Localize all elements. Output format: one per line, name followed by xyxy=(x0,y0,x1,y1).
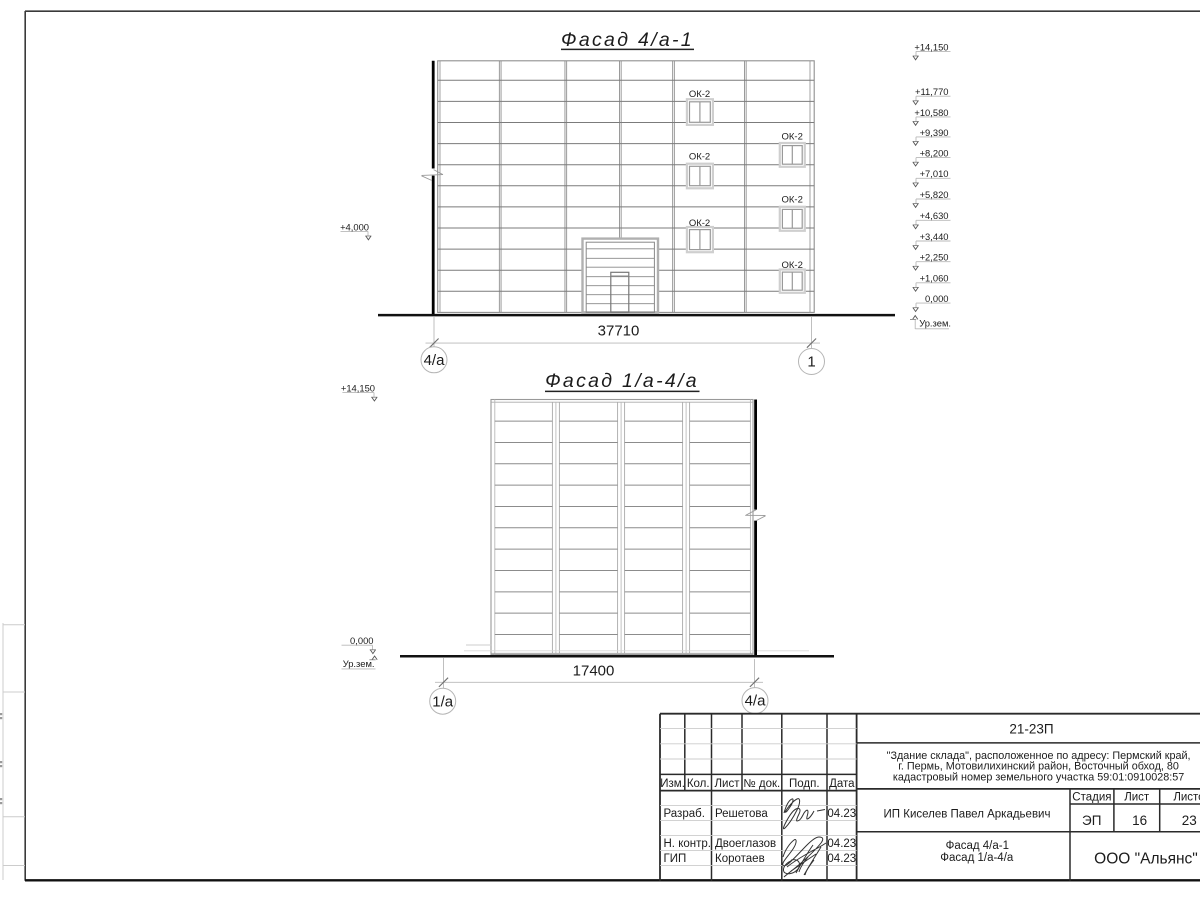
svg-text:04.23: 04.23 xyxy=(827,853,856,865)
svg-text:Фасад 4/а-1: Фасад 4/а-1 xyxy=(946,840,1009,852)
svg-text:Фасад 1/а-4/а: Фасад 1/а-4/а xyxy=(545,370,699,392)
svg-text:ООО "Альянс": ООО "Альянс" xyxy=(1094,851,1198,868)
svg-text:Подп.: Подп. xyxy=(789,778,820,790)
svg-text:ОК-2: ОК-2 xyxy=(782,195,803,206)
svg-text:Дата: Дата xyxy=(829,778,855,790)
svg-text:Коротаев: Коротаев xyxy=(715,853,765,865)
svg-text:+14,150: +14,150 xyxy=(341,383,375,394)
svg-text:Фасад 1/а-4/а: Фасад 1/а-4/а xyxy=(940,852,1014,864)
svg-text:Кол.: Кол. xyxy=(687,778,710,790)
svg-text:Н. контр.: Н. контр. xyxy=(664,838,711,850)
svg-text:Изм.: Изм. xyxy=(660,778,685,790)
svg-text:№ док.: № док. xyxy=(743,778,780,790)
svg-text:ГИП: ГИП xyxy=(664,853,687,865)
svg-text:16: 16 xyxy=(1132,813,1147,828)
svg-text:37710: 37710 xyxy=(598,322,640,339)
svg-text:Лист: Лист xyxy=(1124,792,1150,804)
svg-text:17400: 17400 xyxy=(573,662,615,679)
svg-text:кадастровый номер земельного у: кадастровый номер земельного участка 59:… xyxy=(893,771,1184,783)
svg-text:ОК-2: ОК-2 xyxy=(689,152,710,163)
svg-text:+9,390: +9,390 xyxy=(920,127,949,138)
svg-text:Ур.зем.: Ур.зем. xyxy=(919,318,951,329)
svg-text:Фасад 4/а-1: Фасад 4/а-1 xyxy=(561,29,694,51)
svg-text:04.23: 04.23 xyxy=(827,808,856,820)
svg-text:1: 1 xyxy=(807,354,815,371)
svg-text:ОК-2: ОК-2 xyxy=(782,260,803,271)
svg-text:4/а: 4/а xyxy=(745,693,767,710)
svg-text:Стадия: Стадия xyxy=(1072,792,1111,804)
svg-text:Лист: Лист xyxy=(715,778,741,790)
svg-text:+4,000: +4,000 xyxy=(340,221,369,232)
svg-text:+10,580: +10,580 xyxy=(914,107,948,118)
svg-text:+4,630: +4,630 xyxy=(920,210,949,221)
svg-text:Листов: Листов xyxy=(1173,792,1200,804)
svg-text:+11,770: +11,770 xyxy=(915,86,948,97)
svg-text:+14,150: +14,150 xyxy=(914,41,948,52)
svg-text:+7,010: +7,010 xyxy=(920,168,949,179)
svg-text:+2,250: +2,250 xyxy=(920,252,949,263)
svg-text:Решетова: Решетова xyxy=(715,808,768,820)
svg-text:+8,200: +8,200 xyxy=(920,148,949,159)
svg-text:4/а: 4/а xyxy=(424,352,446,369)
svg-text:0,000: 0,000 xyxy=(925,293,948,304)
svg-text:ОК-2: ОК-2 xyxy=(689,89,710,100)
svg-text:04.23: 04.23 xyxy=(827,838,856,850)
svg-text:+1,060: +1,060 xyxy=(920,273,949,284)
svg-text:Разраб.: Разраб. xyxy=(664,808,705,820)
svg-text:23: 23 xyxy=(1182,813,1197,828)
svg-text:1/а: 1/а xyxy=(432,693,454,710)
svg-text:21-23П: 21-23П xyxy=(1009,721,1053,736)
svg-text:Ур.зем.: Ур.зем. xyxy=(343,658,375,669)
svg-text:Двоеглазов: Двоеглазов xyxy=(715,838,776,850)
svg-text:ОК-2: ОК-2 xyxy=(782,132,803,143)
svg-text:+5,820: +5,820 xyxy=(920,189,949,200)
svg-text:ЭП: ЭП xyxy=(1082,813,1101,828)
svg-text:ИП Киселев Павел Аркадьевич: ИП Киселев Павел Аркадьевич xyxy=(884,809,1051,821)
svg-text:0,000: 0,000 xyxy=(350,635,373,646)
svg-text:+3,440: +3,440 xyxy=(920,231,949,242)
svg-text:ОК-2: ОК-2 xyxy=(689,218,710,229)
